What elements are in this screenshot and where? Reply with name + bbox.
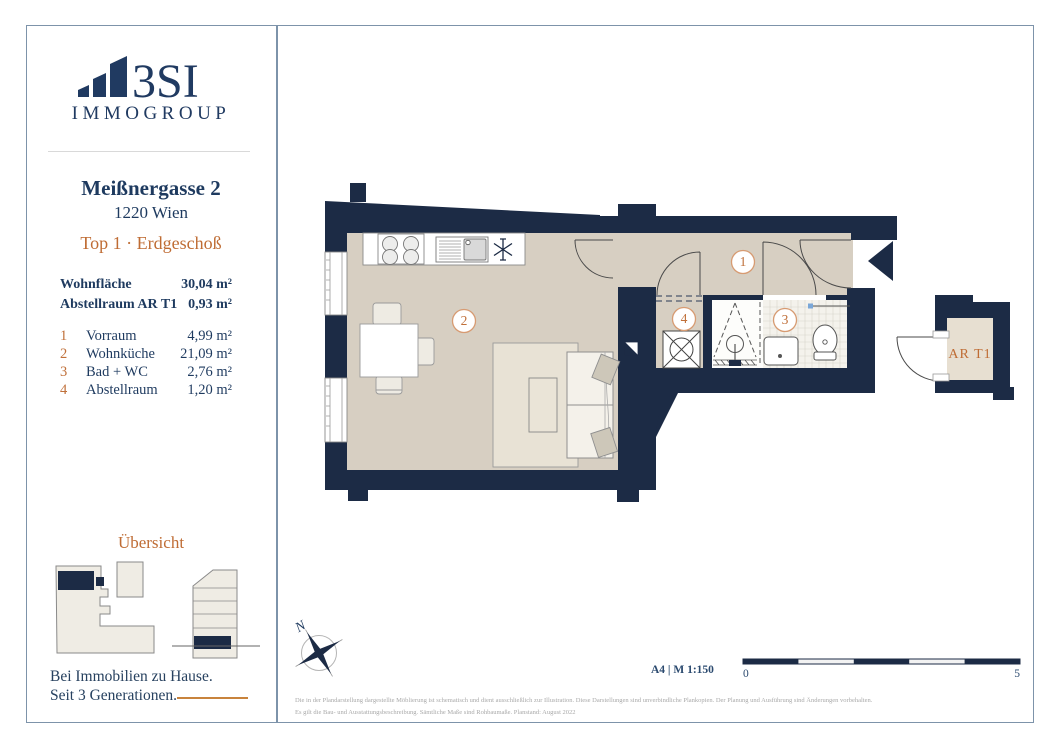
wall-bottom (325, 470, 656, 490)
art1-label: AR T1 (948, 347, 991, 362)
art1-storage: AR T1 (933, 295, 1014, 400)
room-badge-number: 2 (461, 313, 468, 328)
scale-bar: 0 5 (743, 659, 1020, 680)
north-compass-icon: N (292, 618, 342, 676)
wall-notch (618, 204, 656, 216)
window (325, 378, 347, 442)
wall-living-right (618, 287, 656, 470)
coffee-table (529, 378, 557, 432)
room-badge-number: 1 (740, 254, 747, 269)
room-badge-2: 2 (453, 310, 476, 333)
floor-plan: AR T1 1 2 3 4 (0, 0, 1060, 750)
disclaimer-line1: Die in der Plandarstellung dargestellte … (295, 695, 1033, 707)
kitchen-counter (363, 233, 525, 265)
dining-table (360, 324, 418, 377)
chair (376, 376, 402, 394)
wall-top (325, 201, 600, 233)
sink-icon (436, 237, 488, 262)
north-label: N (292, 618, 309, 636)
window (325, 252, 347, 315)
rail-mount (808, 304, 813, 309)
room-badge-3: 3 (774, 309, 797, 332)
disclaimer-line2: Es gilt die Bau- und Ausstattungsbeschre… (295, 707, 1033, 719)
wall-bath-bottom (656, 368, 875, 437)
room-badge-number: 3 (782, 312, 789, 327)
toilet-icon (813, 325, 837, 360)
room-badge-4: 4 (673, 308, 696, 331)
disclaimer: Die in der Plandarstellung dargestellte … (295, 695, 1033, 718)
chair (373, 303, 401, 325)
floorplan-sheet: 3SI IMMOGROUP Meißnergasse 2 1220 Wien T… (0, 0, 1060, 750)
stove-icon (378, 234, 424, 265)
shower-floor (712, 300, 763, 368)
sofa-group (493, 343, 620, 467)
scale-end-label: 5 (1014, 668, 1020, 680)
scale-start-label: 0 (743, 668, 749, 680)
level-marker-icon (625, 342, 638, 355)
format-scale-label: A4 | M 1:150 (651, 664, 714, 676)
washing-machine-icon (663, 331, 700, 368)
wall-chimney-notch (350, 183, 366, 202)
room-badge-1: 1 (732, 251, 755, 274)
vanity-sink-icon (764, 337, 798, 365)
room-badge-number: 4 (681, 311, 688, 326)
entry-arrow-icon (868, 241, 893, 281)
